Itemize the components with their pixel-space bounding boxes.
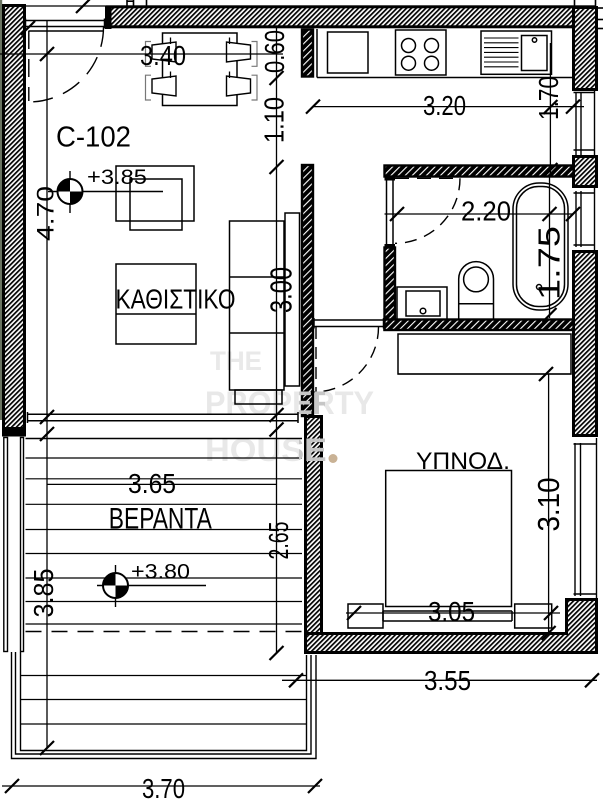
svg-text:2.20: 2.20 xyxy=(461,196,511,227)
svg-text:3.65: 3.65 xyxy=(128,468,176,499)
svg-text:ΚΑΘΙΣΤΙΚΟ: ΚΑΘΙΣΤΙΚΟ xyxy=(116,284,236,315)
svg-text:3.05: 3.05 xyxy=(428,596,475,627)
svg-text:3.40: 3.40 xyxy=(140,40,186,71)
svg-text:ΥΠΝΟΔ.: ΥΠΝΟΔ. xyxy=(416,448,510,475)
svg-text:1.10: 1.10 xyxy=(259,97,290,143)
svg-text:3.55: 3.55 xyxy=(424,665,471,696)
svg-text:THE: THE xyxy=(210,346,262,376)
svg-text:0.60: 0.60 xyxy=(259,30,290,73)
svg-text:3.00: 3.00 xyxy=(264,267,299,313)
svg-text:+3.80: +3.80 xyxy=(131,561,190,584)
svg-text:1.70: 1.70 xyxy=(533,76,564,120)
svg-text:3.70: 3.70 xyxy=(142,773,185,804)
svg-text:4.70: 4.70 xyxy=(33,186,60,241)
svg-text:C-102: C-102 xyxy=(56,122,131,154)
svg-text:1.75: 1.75 xyxy=(532,226,567,300)
svg-text:2.65: 2.65 xyxy=(263,522,294,560)
svg-text:3.20: 3.20 xyxy=(423,90,466,121)
svg-text:+3.85: +3.85 xyxy=(87,166,147,189)
svg-text:3.10: 3.10 xyxy=(531,478,566,532)
svg-text:ΒΕΡΑΝΤΑ: ΒΕΡΑΝΤΑ xyxy=(109,503,212,536)
svg-text:3.85: 3.85 xyxy=(28,569,59,618)
